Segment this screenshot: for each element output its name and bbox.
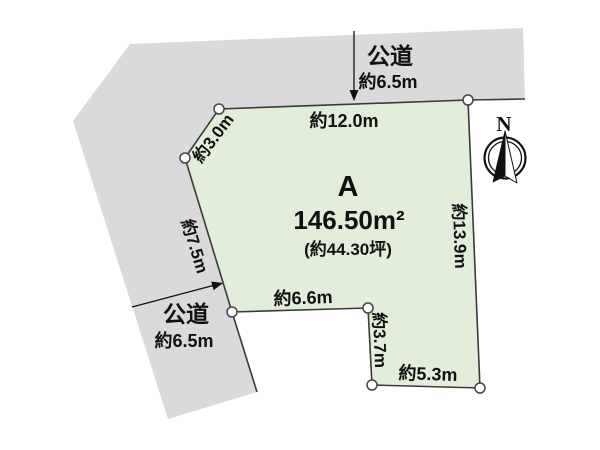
dimension-label-notch: 約3.7m bbox=[369, 312, 391, 368]
parcel-area-label: 146.50m² bbox=[293, 205, 405, 235]
plot-survey-map: 公道 約6.5m 公道 約6.5m 約12.0m 約3.0m 約7.5m 約6.… bbox=[0, 0, 600, 450]
boundary-vertex bbox=[463, 95, 473, 105]
boundary-vertex bbox=[475, 383, 485, 393]
parcel-area-tsubo-label: (約44.30坪) bbox=[304, 239, 392, 259]
dimension-label-bottom: 約5.3m bbox=[398, 362, 458, 385]
road-width-label-top: 約6.5m bbox=[358, 71, 417, 92]
road-label-left: 公道 bbox=[163, 301, 209, 327]
road-width-label-left: 約6.5m bbox=[154, 330, 213, 351]
dimension-label-bottom-left: 約6.6m bbox=[273, 286, 333, 309]
dimension-label-top: 約12.0m bbox=[309, 110, 378, 131]
dimension-label-right: 約13.9m bbox=[449, 203, 471, 269]
road-label-top: 公道 bbox=[367, 43, 413, 69]
boundary-extension-top-right bbox=[468, 99, 525, 100]
compass: N bbox=[485, 112, 526, 183]
boundary-vertex bbox=[227, 307, 237, 317]
compass-north-label: N bbox=[496, 112, 511, 136]
boundary-vertex bbox=[367, 380, 377, 390]
land-plot-diagram: 公道 約6.5m 公道 約6.5m 約12.0m 約3.0m 約7.5m 約6.… bbox=[0, 0, 600, 450]
parcel-label: A bbox=[338, 171, 359, 203]
